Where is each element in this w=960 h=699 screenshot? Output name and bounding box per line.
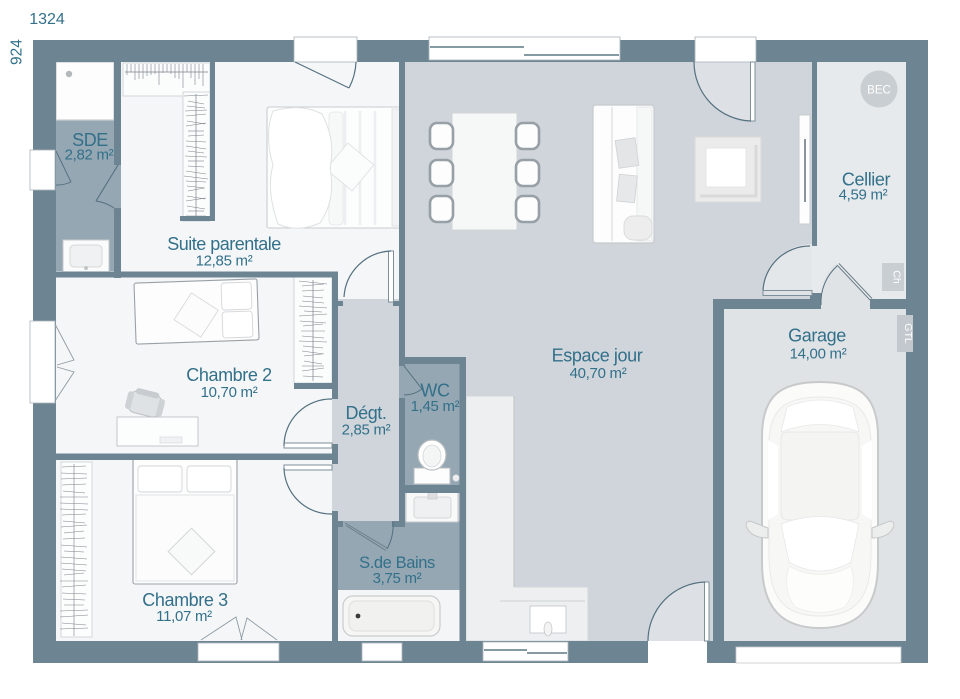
svg-text:14,00 m²: 14,00 m² bbox=[790, 346, 847, 363]
svg-text:10,70 m²: 10,70 m² bbox=[201, 384, 258, 401]
svg-text:BEC: BEC bbox=[867, 85, 891, 97]
svg-text:Espace jour: Espace jour bbox=[552, 346, 643, 366]
svg-text:4,59 m²: 4,59 m² bbox=[839, 187, 888, 204]
svg-text:924: 924 bbox=[9, 39, 26, 65]
svg-text:Dégt.: Dégt. bbox=[345, 403, 386, 423]
svg-text:3,75 m²: 3,75 m² bbox=[373, 570, 422, 587]
svg-text:40,70 m²: 40,70 m² bbox=[570, 365, 627, 382]
svg-text:2,85 m²: 2,85 m² bbox=[342, 422, 391, 439]
svg-text:Garage: Garage bbox=[788, 326, 846, 346]
svg-text:Chambre 3: Chambre 3 bbox=[142, 590, 228, 610]
svg-text:Chambre 2: Chambre 2 bbox=[186, 365, 272, 385]
svg-text:Suite parentale: Suite parentale bbox=[167, 234, 281, 254]
svg-text:GTL: GTL bbox=[902, 323, 914, 344]
svg-text:1,45 m²: 1,45 m² bbox=[411, 398, 460, 415]
svg-text:11,07 m²: 11,07 m² bbox=[156, 608, 212, 625]
svg-text:Ch: Ch bbox=[891, 270, 903, 284]
svg-text:2,82 m²: 2,82 m² bbox=[65, 147, 114, 164]
svg-text:1324: 1324 bbox=[29, 11, 65, 28]
svg-text:12,85 m²: 12,85 m² bbox=[196, 253, 253, 270]
